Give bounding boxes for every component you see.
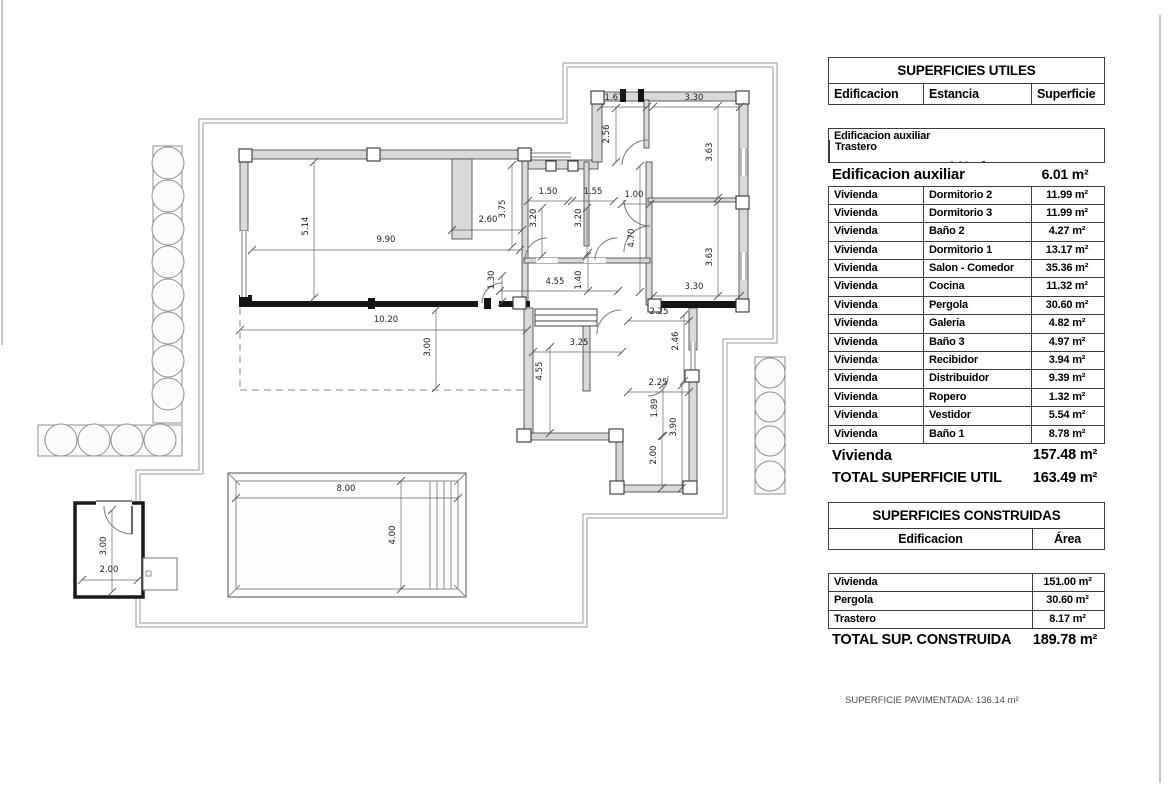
paved-surface-note: SUPERFICIE PAVIMENTADA: 136.14 m² <box>845 695 1019 706</box>
table-row: ViviendaSalon - Comedor35.36 m² <box>828 260 1105 278</box>
col-estancia: Estancia <box>923 84 1031 104</box>
table-cell: Pergola <box>923 297 1031 314</box>
table-cell: Distribuidor <box>923 370 1031 387</box>
dimension-label: 10.20 <box>374 315 398 325</box>
dimension-label: 4.55 <box>535 362 545 381</box>
table-cell: 9.39 m² <box>1031 370 1102 387</box>
utiles-title: SUPERFICIES UTILES <box>828 57 1105 84</box>
table-cell: Pergola <box>829 592 1032 609</box>
dimension-label: 1.30 <box>487 271 497 290</box>
dimension-label: 3.63 <box>705 143 715 162</box>
table-cell: Dormitorio 1 <box>923 242 1031 259</box>
table-cell: Galeria <box>923 315 1031 332</box>
dimension-label: 2.00 <box>100 565 119 575</box>
table-cell: Vivienda <box>829 407 923 424</box>
table-cell: Ropero <box>923 389 1031 406</box>
table-cell: 13.17 m² <box>1031 242 1102 259</box>
table-row: ViviendaDormitorio 311.99 m² <box>828 205 1105 223</box>
dimension-label: 2.46 <box>671 332 681 351</box>
table-cell: Baño 1 <box>923 426 1031 443</box>
table-row: ViviendaBaño 18.78 m² <box>828 426 1105 444</box>
table-cell: Vivienda <box>829 223 923 240</box>
table-cell: 11.99 m² <box>1031 187 1102 204</box>
table-row: ViviendaGaleria4.82 m² <box>828 315 1105 333</box>
dimension-label: 9.90 <box>377 235 396 245</box>
closet <box>535 309 597 326</box>
dimension-label: 8.00 <box>337 484 356 494</box>
auxiliary-building <box>75 499 177 597</box>
table-row: ViviendaCocina11.32 m² <box>828 278 1105 296</box>
table-row: ViviendaRopero1.32 m² <box>828 389 1105 407</box>
utiles-total-row: TOTAL SUPERFICIE UTIL 163.49 m² <box>828 466 1105 489</box>
table-row: ViviendaBaño 24.27 m² <box>828 223 1105 241</box>
dimension-label: 1.40 <box>574 271 584 290</box>
table-cell: 30.60 m² <box>1031 297 1102 314</box>
aux-porch <box>143 558 177 590</box>
table-cell: Vivienda <box>829 297 923 314</box>
dimension-label: 3.30 <box>685 282 704 292</box>
table-row: Trastero8.17 m² <box>828 611 1105 629</box>
utiles-header: Edificacion Estancia Superficie <box>828 84 1105 105</box>
dimension-label: 3.63 <box>705 248 715 267</box>
table-row: ViviendaDormitorio 211.99 m² <box>828 186 1105 205</box>
table-cell: Vivienda <box>829 278 923 295</box>
construidas-row-group: Vivienda151.00 m²Pergola30.60 m²Trastero… <box>828 573 1105 629</box>
dimension-label: 3.00 <box>99 537 109 556</box>
dimension-label: 3.75 <box>498 200 508 219</box>
table-cell: Vestidor <box>923 407 1031 424</box>
table-cell: 4.97 m² <box>1031 334 1102 351</box>
table-cell: 4.82 m² <box>1031 315 1102 332</box>
vivienda-subtotal-row: Vivienda 157.48 m² <box>828 444 1105 467</box>
table-cell: Vivienda <box>829 242 923 259</box>
dimension-label: 3.30 <box>685 93 704 103</box>
dimension-label: 4.55 <box>546 277 565 287</box>
superficies-construidas-table: SUPERFICIES CONSTRUIDAS Edificacion Área… <box>828 502 1105 652</box>
col-area: Área <box>1032 529 1102 549</box>
table-row: Edificacion auxiliar Trastero 6.01 m² <box>828 128 1105 163</box>
table-cell: 11.32 m² <box>1031 278 1102 295</box>
floor-plan-sheet: { "plan": { "dimensions": [ {"t":"1.67",… <box>0 0 1170 785</box>
table-row: ViviendaPergola30.60 m² <box>828 297 1105 315</box>
table-cell: Baño 2 <box>923 223 1031 240</box>
table-cell: Vivienda <box>829 370 923 387</box>
table-cell: Vivienda <box>829 205 923 222</box>
table-row: ViviendaDormitorio 113.17 m² <box>828 242 1105 260</box>
superficies-utiles-table: SUPERFICIES UTILES Edificacion Estancia … <box>828 57 1105 489</box>
table-cell: Baño 3 <box>923 334 1031 351</box>
dimension-label: 2.25 <box>650 307 669 317</box>
dimension-label: 3.25 <box>570 338 589 348</box>
construidas-title: SUPERFICIES CONSTRUIDAS <box>828 502 1105 529</box>
dimension-label: 4.70 <box>627 229 637 248</box>
construidas-total-row: TOTAL SUP. CONSTRUIDA 189.78 m² <box>828 629 1105 652</box>
table-cell: 1.32 m² <box>1031 389 1102 406</box>
table-cell: 8.17 m² <box>1032 611 1102 628</box>
table-cell: 30.60 m² <box>1032 592 1102 609</box>
table-cell: Vivienda <box>829 352 923 369</box>
table-cell: 8.78 m² <box>1031 426 1102 443</box>
table-cell: Vivienda <box>829 315 923 332</box>
dimension-label: 1.89 <box>650 399 660 418</box>
col-edificacion: Edificacion <box>829 529 1032 549</box>
dimension-label: 1.67 <box>605 93 624 103</box>
aux-subtotal-row: Edificacion auxiliar 6.01 m² <box>828 163 1105 186</box>
dimension-label: 1.55 <box>584 187 603 197</box>
dimension-label: 5.14 <box>301 217 311 236</box>
utiles-row-group: ViviendaDormitorio 211.99 m²ViviendaDorm… <box>828 186 1105 444</box>
table-cell: Dormitorio 2 <box>923 187 1031 204</box>
dimension-label: 3.20 <box>574 209 584 228</box>
table-cell: Cocina <box>923 278 1031 295</box>
table-cell: 4.27 m² <box>1031 223 1102 240</box>
table-cell: 11.99 m² <box>1031 205 1102 222</box>
table-row: Vivienda151.00 m² <box>828 573 1105 592</box>
table-cell: 151.00 m² <box>1032 574 1102 591</box>
col-superficie: Superficie <box>1031 84 1102 104</box>
table-cell: Vivienda <box>829 574 1032 591</box>
col-edificacion: Edificacion <box>829 84 923 104</box>
dimension-label: 3.90 <box>669 418 679 437</box>
table-row: ViviendaVestidor5.54 m² <box>828 407 1105 425</box>
dimension-label: 3.20 <box>529 209 539 228</box>
table-cell: Recibidor <box>923 352 1031 369</box>
dimension-label: 1.50 <box>539 187 558 197</box>
dimension-label: 4.00 <box>388 526 398 545</box>
table-cell: Vivienda <box>829 187 923 204</box>
table-row: ViviendaRecibidor3.94 m² <box>828 352 1105 370</box>
table-row: ViviendaBaño 34.97 m² <box>828 334 1105 352</box>
table-row: Pergola30.60 m² <box>828 592 1105 610</box>
dimension-label: 1.00 <box>625 190 644 200</box>
table-cell: Vivienda <box>829 260 923 277</box>
construidas-header: Edificacion Área <box>828 529 1105 550</box>
dimension-label: 2.00 <box>649 446 659 465</box>
dimension-label: 2.60 <box>479 215 498 225</box>
table-cell: Vivienda <box>829 389 923 406</box>
table-cell: Trastero <box>829 611 1032 628</box>
table-cell: Vivienda <box>829 426 923 443</box>
table-cell: 35.36 m² <box>1031 260 1102 277</box>
table-cell: 5.54 m² <box>1031 407 1102 424</box>
dimension-label: 3.00 <box>423 338 433 357</box>
table-cell: Vivienda <box>829 334 923 351</box>
dimension-label: 2.56 <box>602 125 612 144</box>
table-row: ViviendaDistribuidor9.39 m² <box>828 370 1105 388</box>
table-cell: Dormitorio 3 <box>923 205 1031 222</box>
table-cell: 3.94 m² <box>1031 352 1102 369</box>
table-cell: Salon - Comedor <box>923 260 1031 277</box>
